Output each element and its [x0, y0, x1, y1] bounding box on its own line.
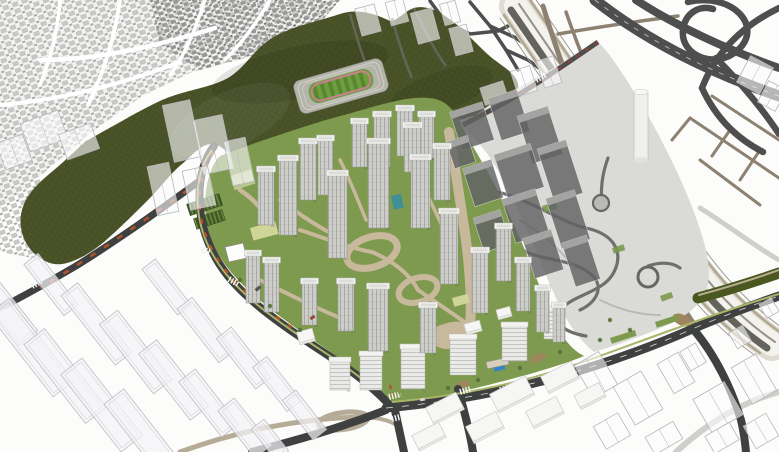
masterplan-svg: [0, 0, 779, 452]
tree: [518, 366, 522, 370]
tree: [558, 350, 562, 354]
vehicle: [420, 398, 425, 402]
residential-tower: [433, 143, 452, 202]
cylinder-tower: [634, 89, 648, 163]
midrise-building: [501, 322, 528, 363]
residential-tower: [301, 278, 319, 327]
residential-tower: [515, 257, 532, 313]
residential-tower: [495, 223, 513, 283]
tree: [598, 338, 602, 342]
midrise-building: [329, 357, 351, 392]
masterplan-render: [0, 0, 779, 452]
residential-tower: [439, 208, 460, 286]
residential-tower: [367, 138, 391, 230]
midrise-building: [449, 334, 477, 377]
residential-tower: [337, 278, 356, 333]
tree: [446, 386, 450, 390]
midrise-building: [359, 351, 383, 392]
residential-tower: [257, 166, 276, 227]
residential-tower: [410, 154, 432, 230]
tree: [628, 328, 632, 332]
tree: [298, 328, 302, 332]
residential-tower: [299, 138, 318, 202]
tree: [268, 304, 272, 308]
residential-tower: [245, 250, 262, 305]
residential-tower: [278, 155, 299, 237]
tree: [476, 378, 480, 382]
residential-tower: [351, 118, 369, 169]
residential-tower: [552, 302, 567, 344]
residential-tower: [419, 302, 438, 355]
tree: [238, 278, 242, 282]
residential-tower: [327, 170, 349, 260]
tree: [608, 318, 612, 322]
residential-tower: [535, 285, 551, 334]
residential-tower: [367, 283, 390, 353]
park-circle-plaza: [593, 195, 609, 211]
residential-tower: [471, 247, 490, 315]
